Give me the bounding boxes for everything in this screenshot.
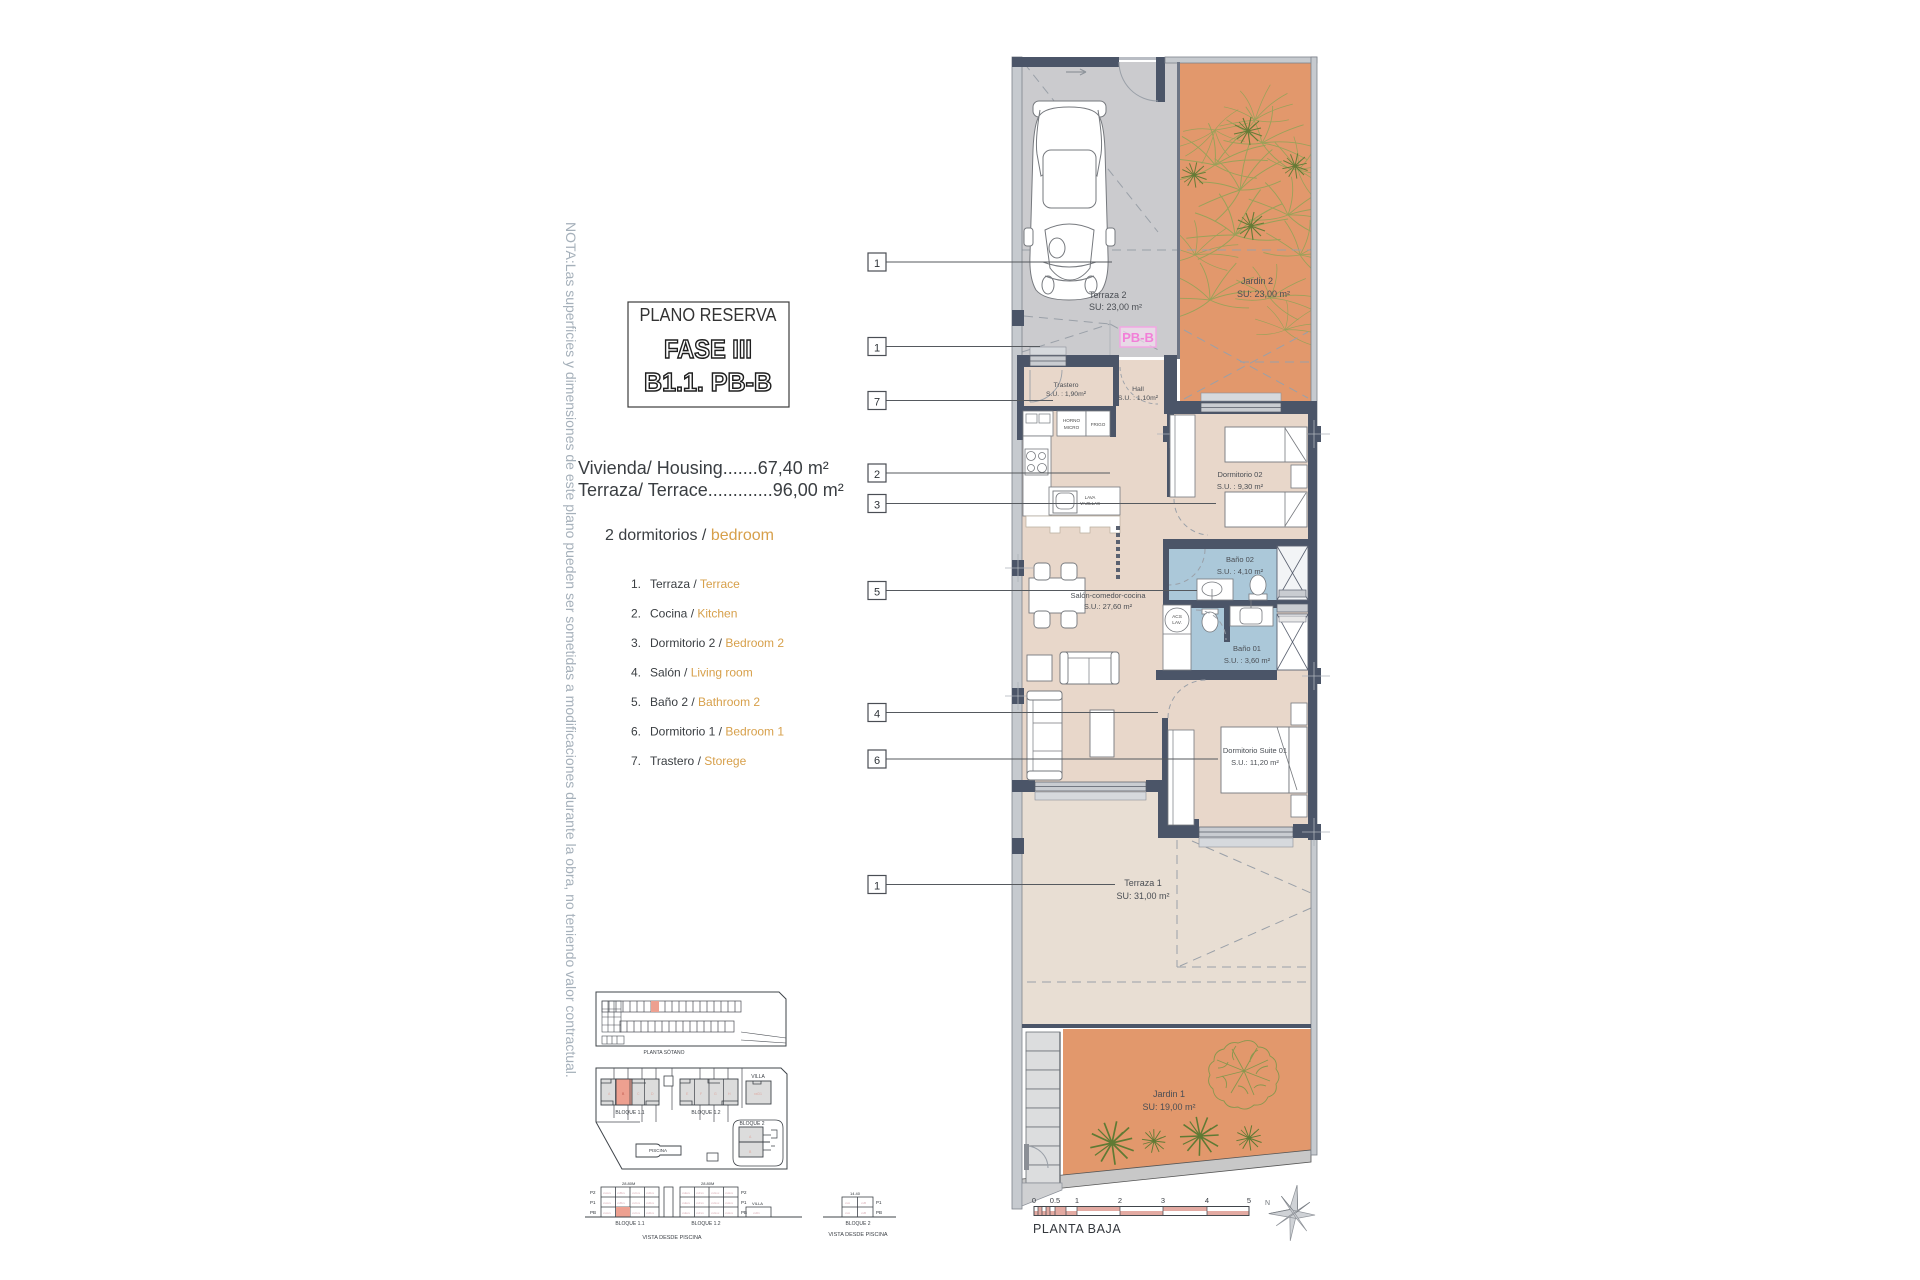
svg-text:xxFxx: xxFxx [696, 1201, 704, 1205]
svg-text:1.: 1. [631, 577, 641, 591]
svg-text:xxB: xxB [861, 1211, 866, 1215]
svg-text:BLOQUE 1.2: BLOQUE 1.2 [691, 1221, 720, 1227]
svg-text:2: 2 [874, 469, 880, 481]
svg-text:SU: 23,00 m²: SU: 23,00 m² [1237, 289, 1290, 299]
svg-text:1: 1 [874, 258, 880, 270]
svg-text:PB: PB [876, 1210, 882, 1215]
svg-text:VISTA DESDE PISCINA: VISTA DESDE PISCINA [828, 1232, 888, 1238]
svg-text:xxHxx: xxHxx [725, 1201, 734, 1205]
svg-text:F: F [700, 1092, 702, 1096]
svg-text:SU: 23,00 m²: SU: 23,00 m² [1089, 302, 1142, 312]
svg-text:2.: 2. [631, 607, 641, 621]
svg-text:S.U. : 1,10m²: S.U. : 1,10m² [1118, 395, 1159, 402]
svg-text:PLANO RESERVA: PLANO RESERVA [640, 305, 777, 325]
svg-text:3.: 3. [631, 636, 641, 650]
svg-text:xxGxx: xxGxx [711, 1201, 720, 1205]
svg-text:Terraza 1: Terraza 1 [1124, 878, 1162, 888]
svg-text:S.U. : 1,90m²: S.U. : 1,90m² [1046, 391, 1087, 398]
svg-text:N: N [1265, 1200, 1270, 1207]
svg-text:Terraza/ Terrace.............9: Terraza/ Terrace.............96,00 m² [578, 480, 844, 500]
svg-text:Dormitorio 2 / Bedroom 2: Dormitorio 2 / Bedroom 2 [650, 636, 784, 650]
svg-text:5: 5 [874, 587, 880, 599]
svg-text:Jardin 2: Jardin 2 [1241, 276, 1273, 286]
svg-text:xxAxx: xxAxx [603, 1201, 612, 1205]
svg-text:7: 7 [874, 397, 880, 409]
svg-text:PB: PB [590, 1210, 596, 1215]
svg-text:xxCxx: xxCxx [632, 1211, 641, 1215]
svg-text:xxBxx: xxBxx [617, 1201, 626, 1205]
svg-text:SU: 19,00 m²: SU: 19,00 m² [1142, 1102, 1195, 1112]
svg-text:2 dormitorios / bedroom: 2 dormitorios / bedroom [605, 527, 774, 544]
svg-text:Baño 01: Baño 01 [1233, 644, 1261, 653]
svg-text:xxB: xxB [861, 1201, 866, 1205]
svg-text:14.40: 14.40 [850, 1191, 861, 1196]
svg-text:0: 0 [1032, 1196, 1036, 1205]
svg-text:PLANTA BAJA: PLANTA BAJA [1033, 1222, 1121, 1236]
svg-text:VILLA: VILLA [751, 1074, 765, 1080]
svg-text:Terraza 2: Terraza 2 [1089, 290, 1127, 300]
svg-text:1: 1 [1075, 1196, 1079, 1205]
svg-text:7.: 7. [631, 754, 641, 768]
svg-text:MICRO: MICRO [1064, 425, 1080, 430]
svg-text:xxDxx: xxDxx [646, 1211, 655, 1215]
svg-text:xxExx: xxExx [682, 1211, 691, 1215]
svg-text:28.80M: 28.80M [701, 1181, 714, 1186]
svg-text:Terraza / Terrace: Terraza / Terrace [650, 577, 740, 591]
svg-text:1: 1 [874, 343, 880, 355]
svg-text:xxExx: xxExx [682, 1201, 691, 1205]
svg-text:xxA: xxA [845, 1201, 850, 1205]
svg-text:S.U. : 3,60 m²: S.U. : 3,60 m² [1224, 656, 1271, 665]
svg-text:PISCINA: PISCINA [649, 1148, 667, 1153]
svg-text:3: 3 [874, 500, 880, 512]
svg-text:xxBxx: xxBxx [617, 1191, 626, 1195]
svg-text:BLOQUE 2: BLOQUE 2 [845, 1221, 870, 1227]
svg-text:6.: 6. [631, 725, 641, 739]
svg-text:4: 4 [874, 709, 880, 721]
svg-text:Dormitorio 1 / Bedroom 1: Dormitorio 1 / Bedroom 1 [650, 725, 784, 739]
svg-text:28.80M: 28.80M [622, 1181, 635, 1186]
svg-text:xxExx: xxExx [682, 1191, 691, 1195]
svg-text:3: 3 [1161, 1196, 1165, 1205]
svg-text:xxD1: xxD1 [754, 1092, 762, 1096]
svg-text:G: G [714, 1092, 717, 1096]
svg-text:xxCxx: xxCxx [632, 1201, 641, 1205]
svg-text:2: 2 [1118, 1196, 1122, 1205]
svg-text:Hall: Hall [1132, 386, 1144, 393]
svg-text:P1: P1 [741, 1200, 747, 1205]
svg-text:xxAxx: xxAxx [603, 1211, 612, 1215]
svg-text:P2: P2 [590, 1190, 596, 1195]
svg-text:SU: 31,00 m²: SU: 31,00 m² [1116, 891, 1169, 901]
svg-text:VISTA DESDE PISCINA: VISTA DESDE PISCINA [642, 1235, 702, 1241]
svg-text:xxCxx: xxCxx [632, 1191, 641, 1195]
svg-text:Salón / Living room: Salón / Living room [650, 666, 753, 680]
svg-text:HORNO: HORNO [1063, 418, 1081, 423]
svg-text:xxDxx: xxDxx [646, 1201, 655, 1205]
svg-text:BLOQUE 2: BLOQUE 2 [739, 1121, 764, 1127]
svg-text:xxAxx: xxAxx [603, 1191, 612, 1195]
svg-text:6: 6 [874, 755, 880, 767]
svg-text:5: 5 [1247, 1196, 1251, 1205]
svg-text:Salón-comedor-cocina: Salón-comedor-cocina [1070, 591, 1146, 600]
svg-text:PLANTA SÓTANO: PLANTA SÓTANO [644, 1049, 685, 1056]
svg-text:S.U.: 11,20 m²: S.U.: 11,20 m² [1231, 758, 1279, 767]
svg-text:S.U. : 9,30 m²: S.U. : 9,30 m² [1217, 482, 1264, 491]
svg-text:Dormitorio Suite 01: Dormitorio Suite 01 [1223, 746, 1287, 755]
svg-text:xxHxx: xxHxx [725, 1191, 734, 1195]
svg-text:BLOQUE 1.1: BLOQUE 1.1 [615, 1110, 644, 1116]
svg-text:FASE III: FASE III [664, 334, 752, 364]
svg-text:ACS: ACS [1172, 614, 1182, 620]
svg-text:Trastero: Trastero [1053, 382, 1078, 389]
svg-text:VILLA: VILLA [752, 1201, 763, 1206]
svg-text:P2: P2 [741, 1190, 747, 1195]
svg-text:PB-B: PB-B [1122, 330, 1154, 345]
svg-text:LAV.: LAV. [1172, 620, 1182, 626]
svg-text:Trastero / Storege: Trastero / Storege [650, 754, 747, 768]
svg-text:xxHxx: xxHxx [725, 1211, 734, 1215]
svg-text:S.U.: 27,60 m²: S.U.: 27,60 m² [1084, 602, 1133, 611]
svg-text:xxFxx: xxFxx [696, 1191, 704, 1195]
svg-text:FRIGO: FRIGO [1091, 422, 1106, 427]
svg-text:1: 1 [874, 881, 880, 893]
svg-text:0.5: 0.5 [1050, 1196, 1060, 1205]
svg-text:B1.1. PB-B: B1.1. PB-B [644, 367, 772, 397]
svg-text:Jardin 1: Jardin 1 [1153, 1089, 1185, 1099]
svg-text:4: 4 [1205, 1196, 1209, 1205]
svg-text:xxDxx: xxDxx [646, 1191, 655, 1195]
svg-text:LAVA: LAVA [1085, 495, 1096, 500]
svg-text:P1: P1 [590, 1200, 596, 1205]
svg-text:xxGxx: xxGxx [711, 1211, 720, 1215]
svg-text:xxGxx: xxGxx [711, 1191, 720, 1195]
svg-text:Dormitorio 02: Dormitorio 02 [1217, 470, 1262, 479]
svg-text:Baño 2 / Bathroom 2: Baño 2 / Bathroom 2 [650, 695, 760, 709]
svg-text:BLOQUE 1.2: BLOQUE 1.2 [691, 1110, 720, 1116]
svg-text:P1: P1 [876, 1200, 882, 1205]
svg-text:xxFxx: xxFxx [696, 1211, 704, 1215]
svg-text:Vivienda/ Housing.......67,40: Vivienda/ Housing.......67,40 m² [578, 458, 829, 478]
svg-text:5.: 5. [631, 695, 641, 709]
svg-text:BLOQUE 1.1: BLOQUE 1.1 [615, 1221, 644, 1227]
svg-text:Cocina / Kitchen: Cocina / Kitchen [650, 607, 737, 621]
svg-text:Baño 02: Baño 02 [1226, 555, 1254, 564]
svg-text:xxD1: xxD1 [753, 1211, 760, 1215]
svg-text:NOTA:Las superficies y dimensi: NOTA:Las superficies y dimensiones de es… [563, 222, 579, 1078]
svg-text:S.U. : 4,10 m²: S.U. : 4,10 m² [1217, 567, 1264, 576]
svg-text:4.: 4. [631, 666, 641, 680]
svg-text:xxA: xxA [845, 1211, 850, 1215]
